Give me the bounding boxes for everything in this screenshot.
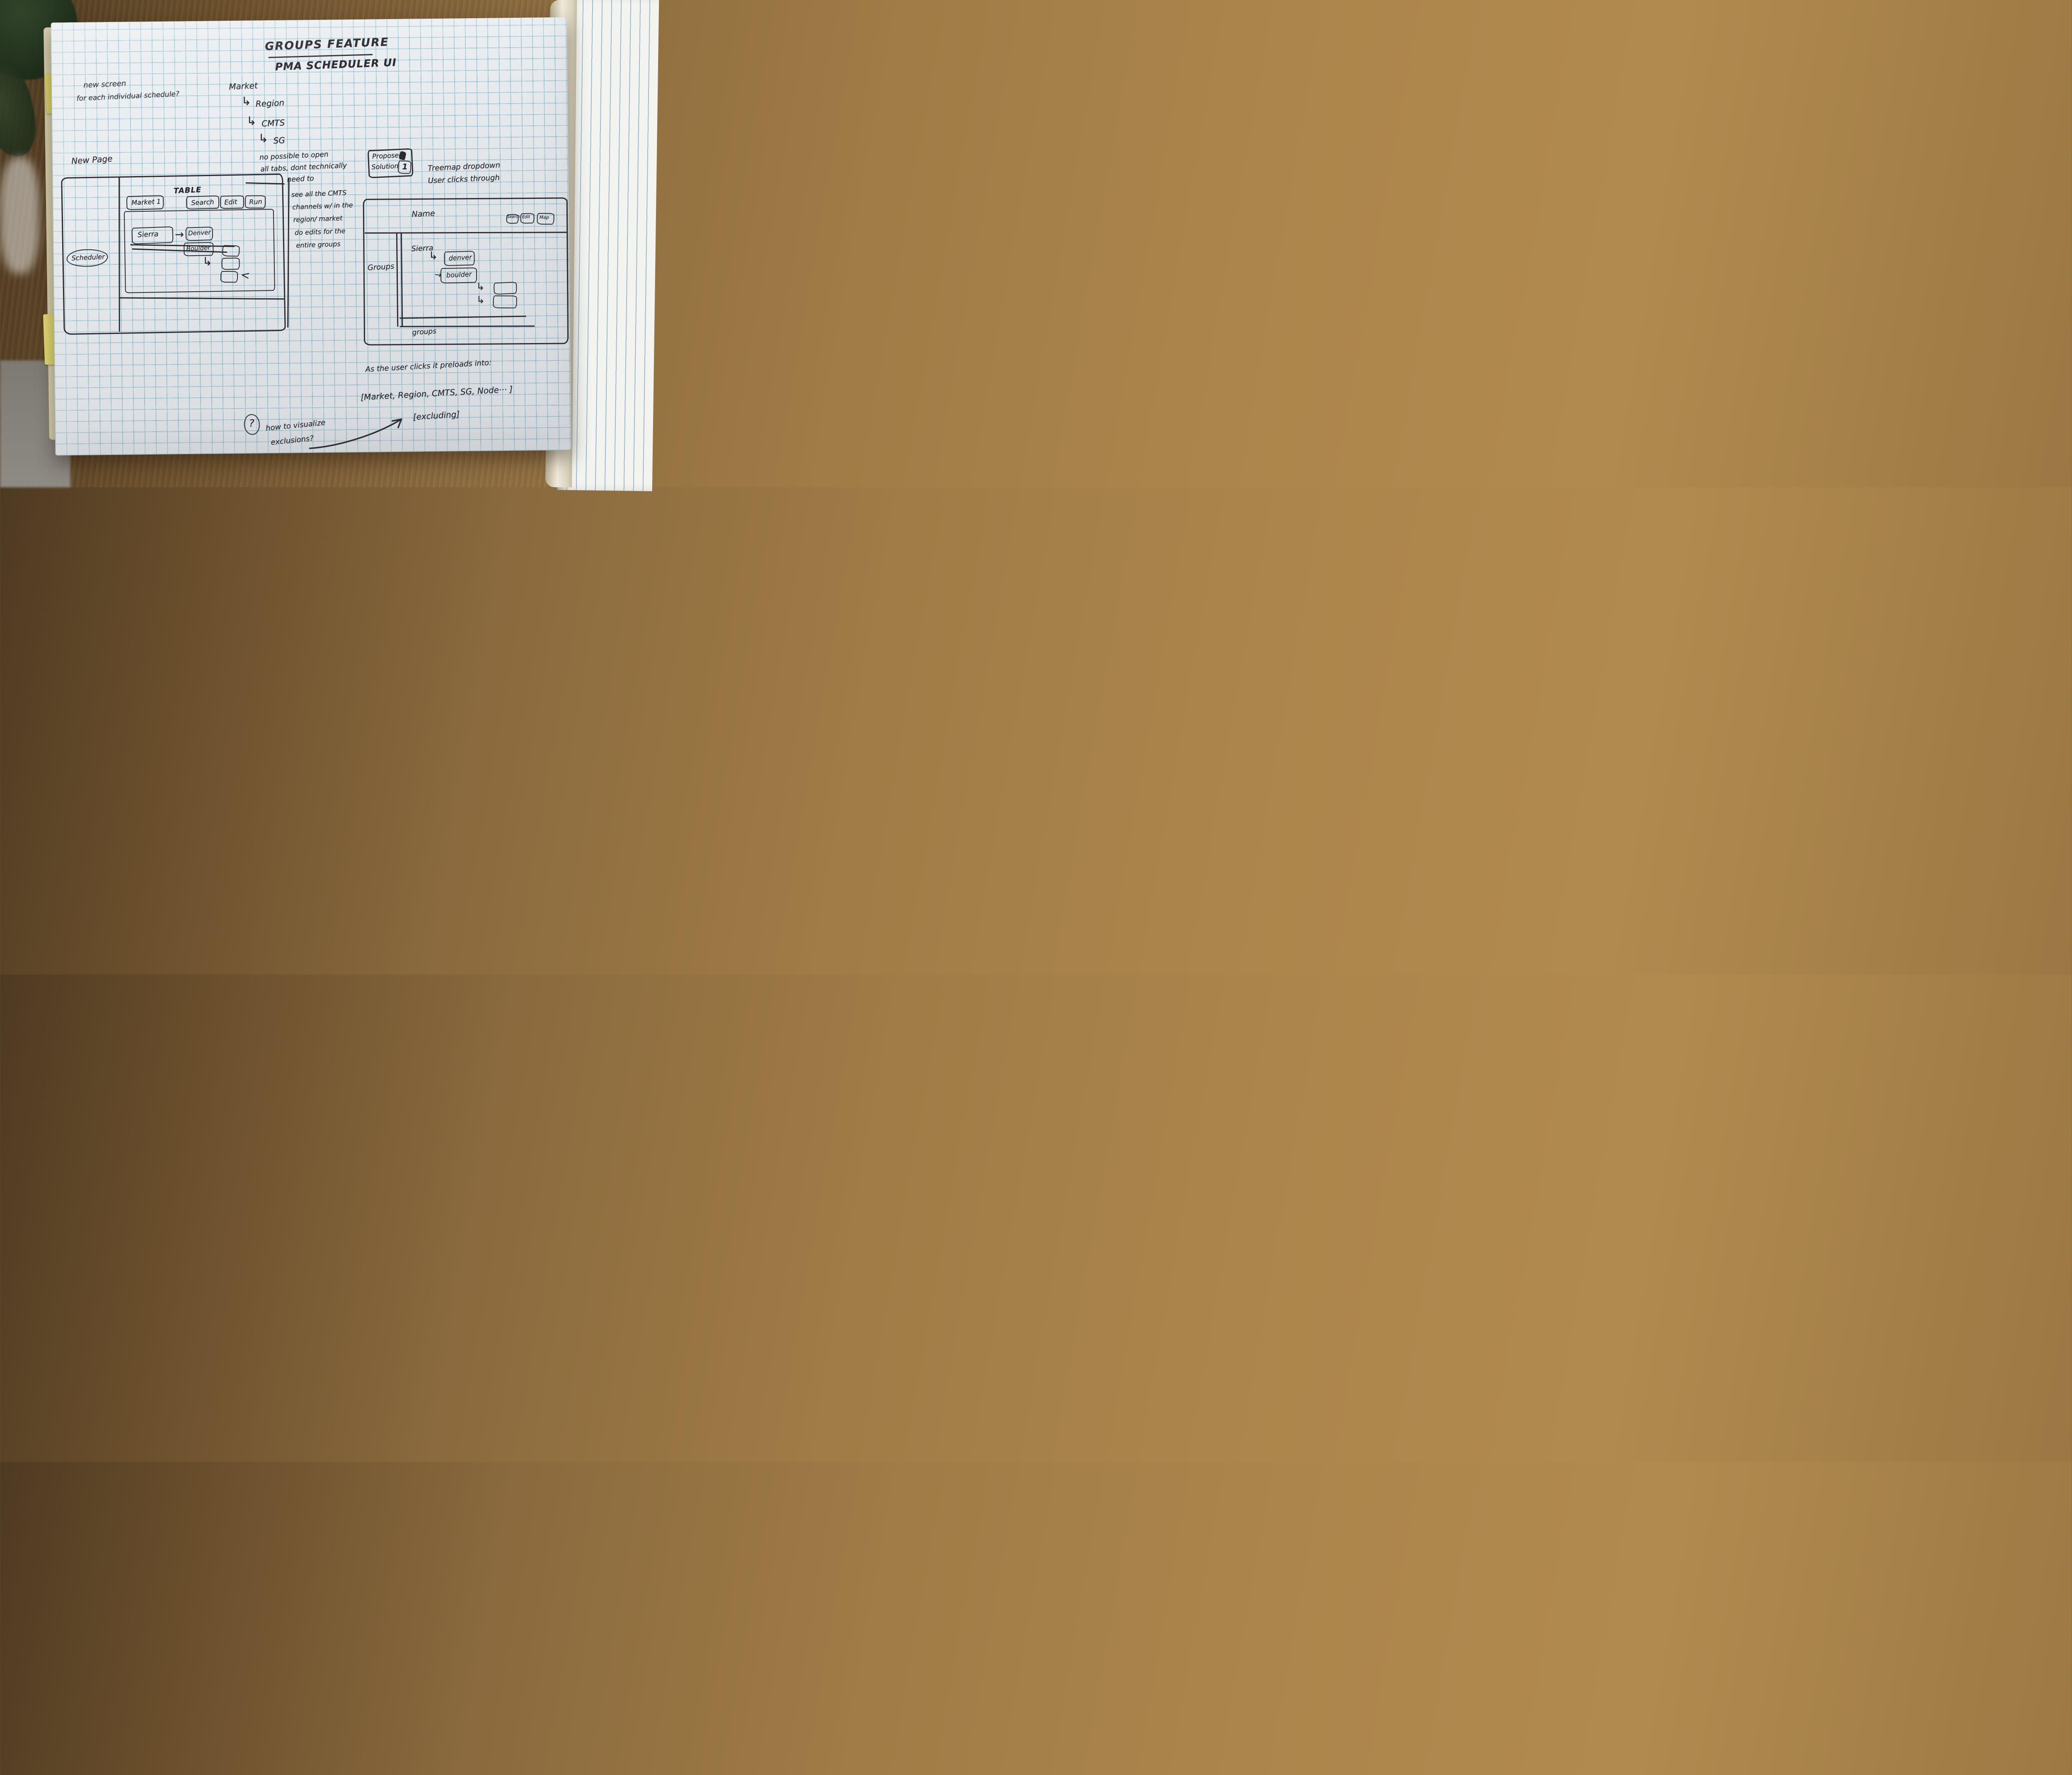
pointer-arrow (307, 408, 411, 455)
note-cmts-3: region/ market (293, 214, 342, 224)
edit-button-label: Edit (224, 198, 237, 206)
note-tabs-3: need to (287, 174, 314, 184)
right-child-boulder-label: boulder (446, 270, 472, 279)
tree-parent-label: Sierra (138, 230, 159, 239)
solution-number: 1 (402, 162, 407, 172)
arrow-sub-icon: ↳ (247, 114, 257, 128)
arrow-sub-icon: ↳ (241, 94, 251, 108)
hierarchy-region: Region (255, 97, 284, 109)
groups-row-label: Groups (367, 262, 395, 272)
photo-of-notebook-sketch: { "sketch": { "title": { "line1": "GROUP… (0, 0, 650, 487)
note-new-page: New Page (71, 153, 113, 166)
sketch-title-line2: PMA SCHEDULER UI (275, 56, 397, 73)
tick-mark: < (240, 268, 250, 282)
tree-child-denver-label: Denver (188, 229, 211, 237)
graph-paper-page: GROUPS FEATURE PMA SCHEDULER UI new scre… (51, 17, 571, 456)
sidebar-item-scheduler-label: Scheduler (71, 253, 105, 262)
annotation-divider-line (287, 178, 289, 328)
right-leaf-node-box (493, 295, 517, 308)
note-cmts-5: entire groups (296, 240, 341, 249)
hierarchy-market: Market (229, 80, 258, 92)
arrow-sub-icon: ↳ (258, 131, 268, 145)
header-mini-button-map-label: Map (539, 215, 549, 220)
proposed-solution-line1: Proposed (372, 151, 403, 160)
question-mark: ? (249, 417, 254, 429)
header-mini-button-search-label: Search (507, 215, 520, 219)
table-label: TABLE (173, 186, 201, 196)
arrow-sub-icon: ↳ (476, 294, 484, 306)
name-column-label: Name (411, 209, 435, 219)
leaf-node-box (222, 245, 240, 257)
note-preload-intro: As the user clicks it preloads into: (365, 358, 491, 374)
hierarchy-sg: SG (273, 135, 285, 145)
note-tabs-2: all tabs, dont technically (260, 161, 347, 173)
search-button-label: Search (191, 198, 214, 206)
note-preload-list: [Market, Region, CMTS, SG, Node··· ] (361, 384, 513, 402)
tree-child-boulder-label: Boulder (186, 244, 211, 253)
groups-bottom-label: groups (412, 327, 437, 337)
right-child-denver-label: denver (448, 253, 472, 262)
note-treemap-2: User clicks through (428, 173, 500, 185)
arrow-sub-icon: ↳ (476, 281, 484, 293)
right-leaf-node-box (494, 282, 517, 295)
leaf-node-box (220, 271, 238, 283)
header-mini-button-edit-label: Edit (522, 215, 530, 219)
arrow-right-icon: → (175, 228, 184, 241)
arrow-sub-icon: ↳ (428, 250, 438, 262)
note-new-screen: new screen (83, 79, 126, 90)
sketch-title-line1: GROUPS FEATURE (265, 36, 389, 53)
arrow-sub-icon: ↳ (202, 255, 212, 268)
proposed-solution-line2: Solution (371, 162, 399, 171)
note-treemap-1: Treemap dropdown (428, 161, 500, 173)
note-cmts-4: do edits for the (295, 227, 346, 237)
note-new-screen2: for each individual schedule? (76, 90, 179, 103)
note-tabs-1: no possible to open (259, 150, 329, 162)
tab-market1-label: Market 1 (131, 198, 161, 207)
note-excluding: [excluding] (413, 409, 460, 422)
run-button-label: Run (249, 198, 262, 206)
hierarchy-cmts: CMTS (261, 118, 285, 129)
window-light-patch (0, 157, 39, 273)
note-cmts-2: channels w/ in the (292, 201, 353, 211)
leaf-node-box (221, 257, 240, 270)
note-cmts-1: see all the CMTS (291, 189, 347, 198)
